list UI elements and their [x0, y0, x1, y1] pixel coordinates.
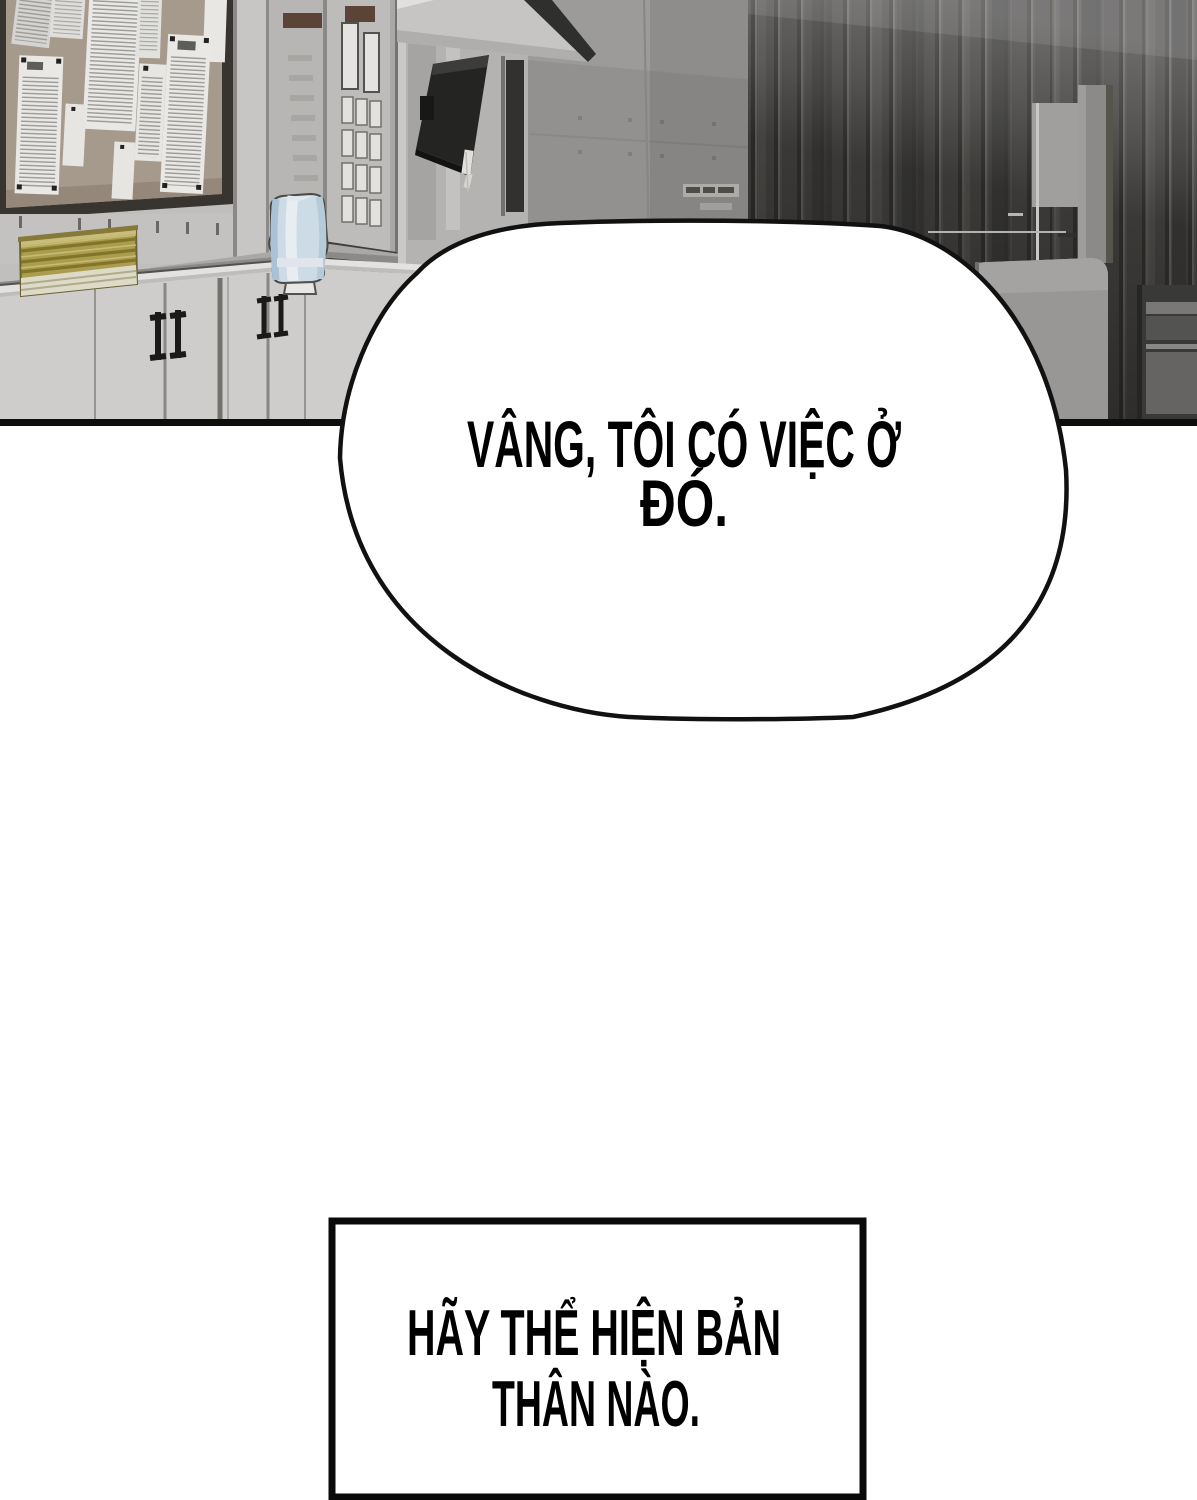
svg-text:ĐÓ.: ĐÓ.: [640, 466, 728, 540]
svg-text:THÂN NÀO.: THÂN NÀO.: [492, 1367, 700, 1440]
svg-text:HÃY THỂ HIỆN BẢN: HÃY THỂ HIỆN BẢN: [407, 1296, 781, 1369]
